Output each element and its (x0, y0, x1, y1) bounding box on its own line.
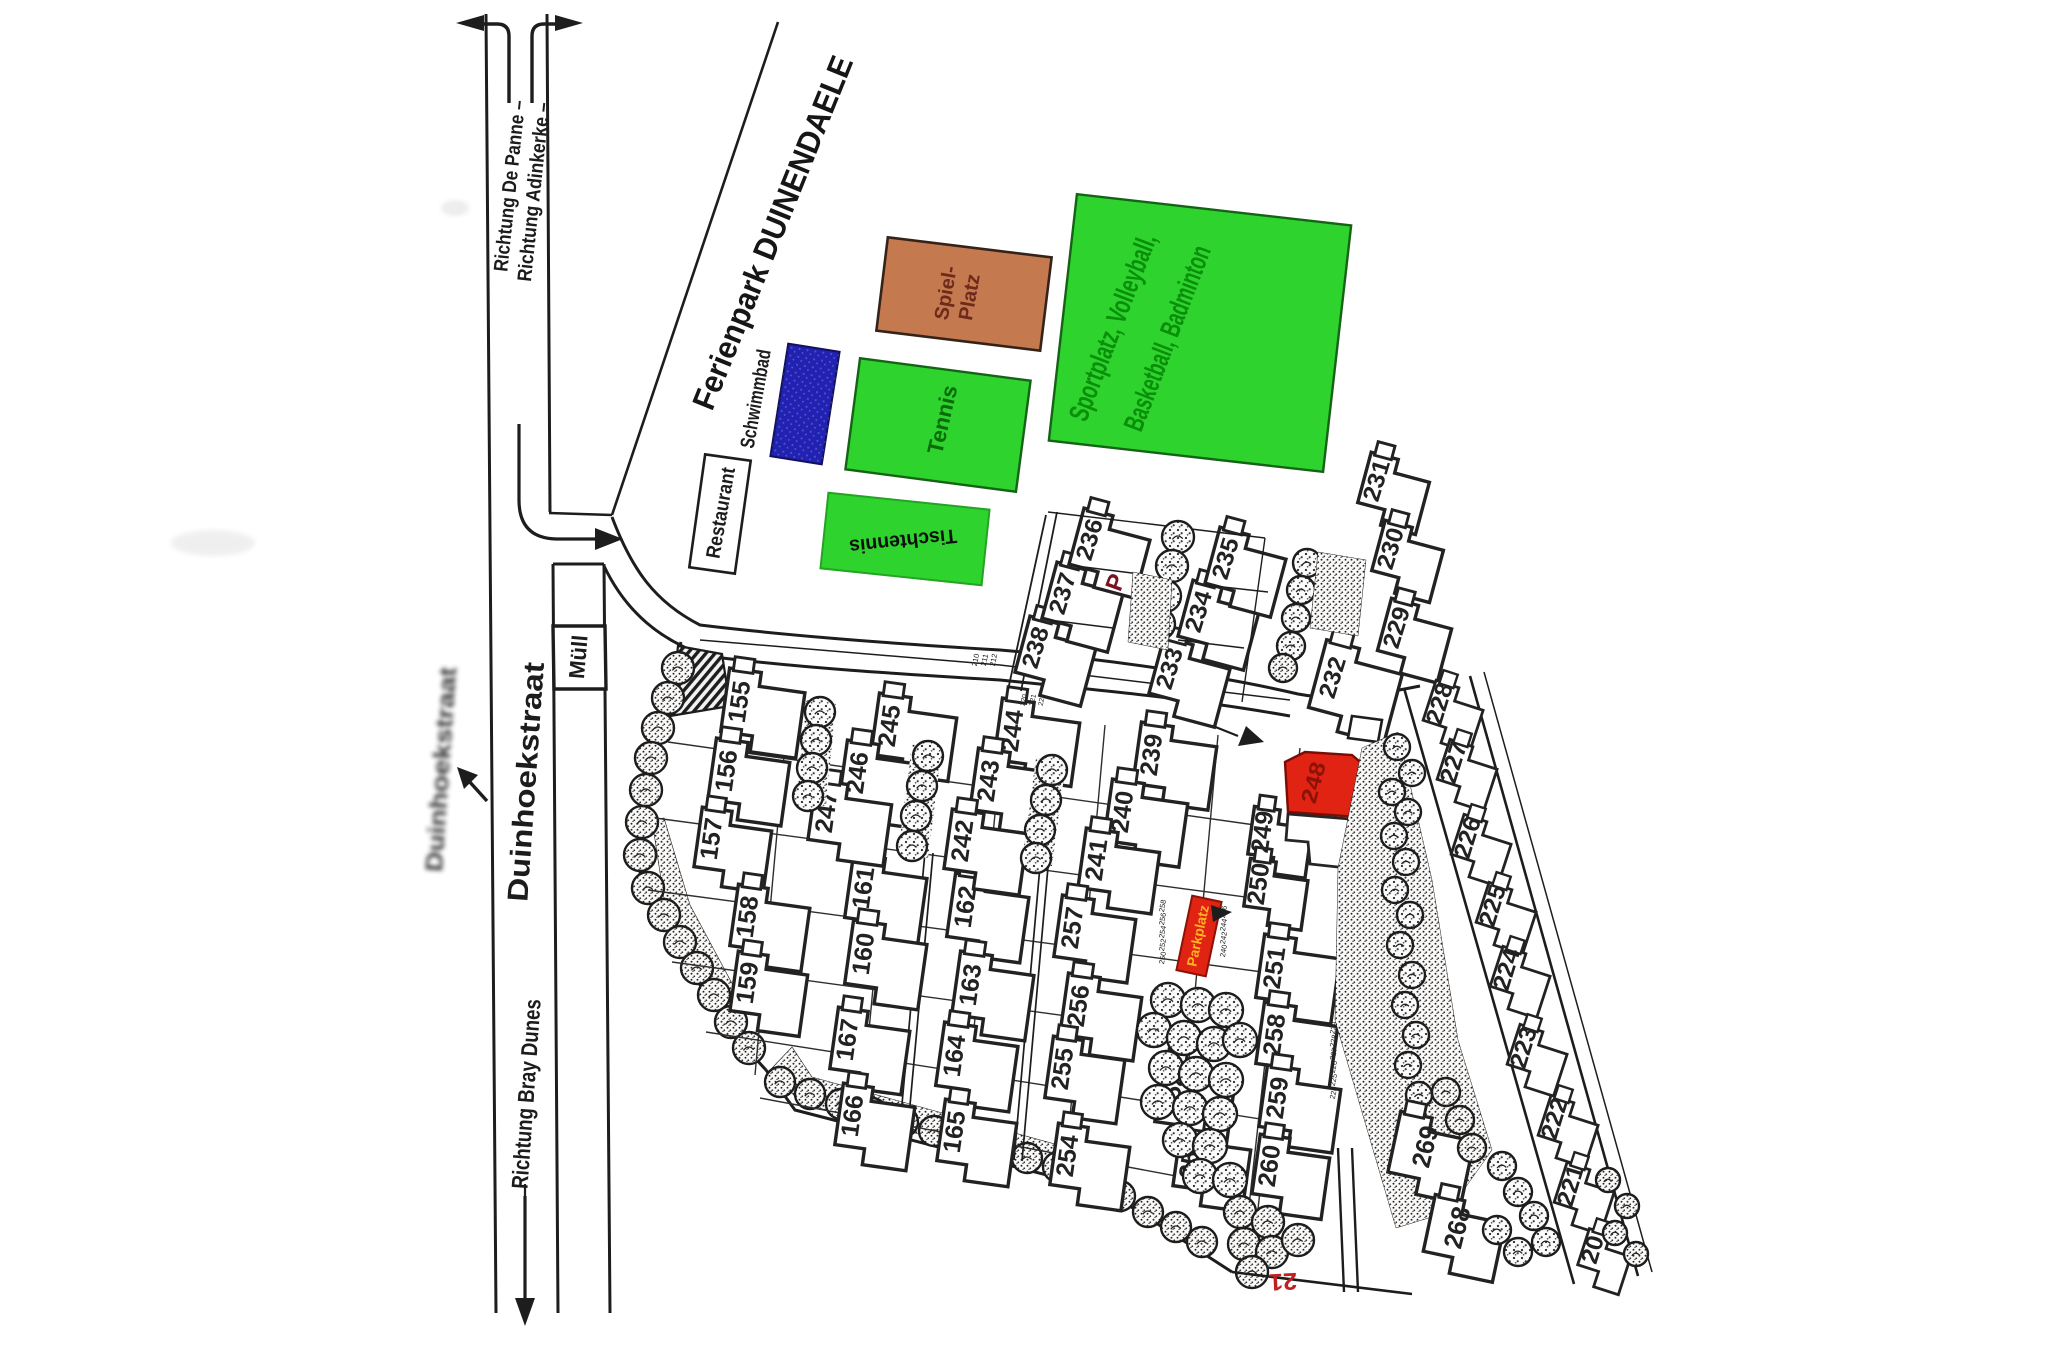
svg-text:167: 167 (831, 1017, 865, 1062)
svg-text:260: 260 (1253, 1143, 1287, 1188)
svg-text:256: 256 (1062, 983, 1096, 1028)
svg-text:259: 259 (1261, 1075, 1295, 1120)
svg-text:250: 250 (1242, 861, 1276, 906)
svg-text:160: 160 (847, 931, 881, 976)
svg-text:161: 161 (847, 865, 881, 911)
svg-text:163: 163 (954, 962, 988, 1007)
svg-text:162: 162 (949, 884, 983, 929)
svg-text:251: 251 (1258, 945, 1292, 991)
svg-text:155: 155 (723, 679, 757, 725)
svg-text:241: 241 (1080, 837, 1114, 883)
svg-text:257: 257 (1056, 905, 1090, 950)
svg-text:21: 21 (1268, 1267, 1297, 1295)
svg-text:240: 240 (1106, 789, 1140, 834)
svg-text:255: 255 (1046, 1046, 1080, 1092)
svg-text:249: 249 (1246, 809, 1280, 854)
svg-text:157: 157 (695, 816, 729, 861)
svg-text:254: 254 (1051, 1133, 1085, 1179)
svg-text:243: 243 (972, 758, 1006, 803)
svg-text:242: 242 (946, 818, 980, 863)
svg-text:156: 156 (710, 748, 744, 793)
svg-text:258: 258 (1258, 1012, 1292, 1058)
svg-text:244: 244 (996, 708, 1030, 754)
svg-text:158: 158 (731, 894, 765, 940)
svg-text:159: 159 (731, 960, 765, 1005)
svg-text:239: 239 (1135, 732, 1169, 777)
svg-text:165: 165 (938, 1109, 972, 1155)
svg-text:164: 164 (938, 1033, 972, 1079)
svg-text:245: 245 (873, 703, 907, 749)
svg-text:Müll: Müll (564, 634, 593, 680)
svg-text:166: 166 (836, 1093, 870, 1138)
svg-text:246: 246 (841, 750, 875, 795)
